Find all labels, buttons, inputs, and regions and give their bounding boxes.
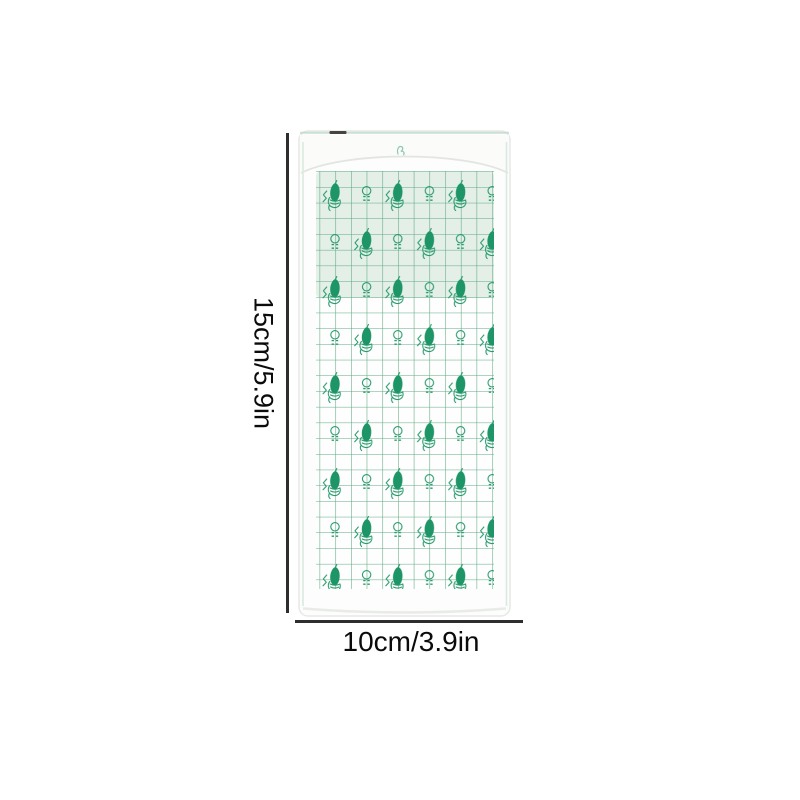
product-photo: 15cm/5.9in 10cm/3.9in [0, 0, 800, 800]
width-dimension-label: 10cm/3.9in [343, 626, 480, 658]
height-dimension-label: 15cm/5.9in [248, 297, 279, 429]
package-print-mark [330, 131, 347, 134]
motif-print [316, 171, 494, 589]
film-dressing-package [0, 0, 800, 800]
height-dimension-line [286, 133, 289, 613]
width-dimension-line [295, 620, 523, 623]
backing-grid-panel [316, 171, 494, 589]
